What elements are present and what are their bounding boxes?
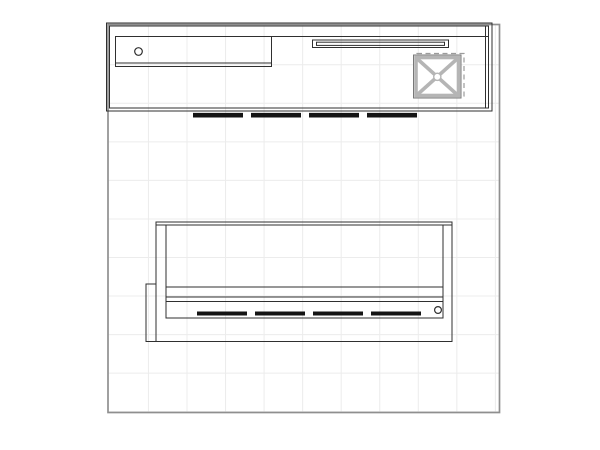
booth-floor-plan: [0, 0, 600, 450]
crate-center-cap: [434, 73, 441, 80]
light-shelf-inner: [317, 42, 445, 45]
bottom-unit-outer: [156, 222, 452, 342]
bottom-unit-wing: [146, 284, 156, 342]
grommet-hole-bottom: [435, 307, 442, 314]
bottom-unit-inner: [166, 225, 443, 318]
storage-compartment: [116, 37, 272, 67]
grommet-hole-top: [135, 48, 143, 56]
floor-plan-canvas: [0, 0, 600, 450]
light-shelf-outer: [313, 40, 449, 48]
